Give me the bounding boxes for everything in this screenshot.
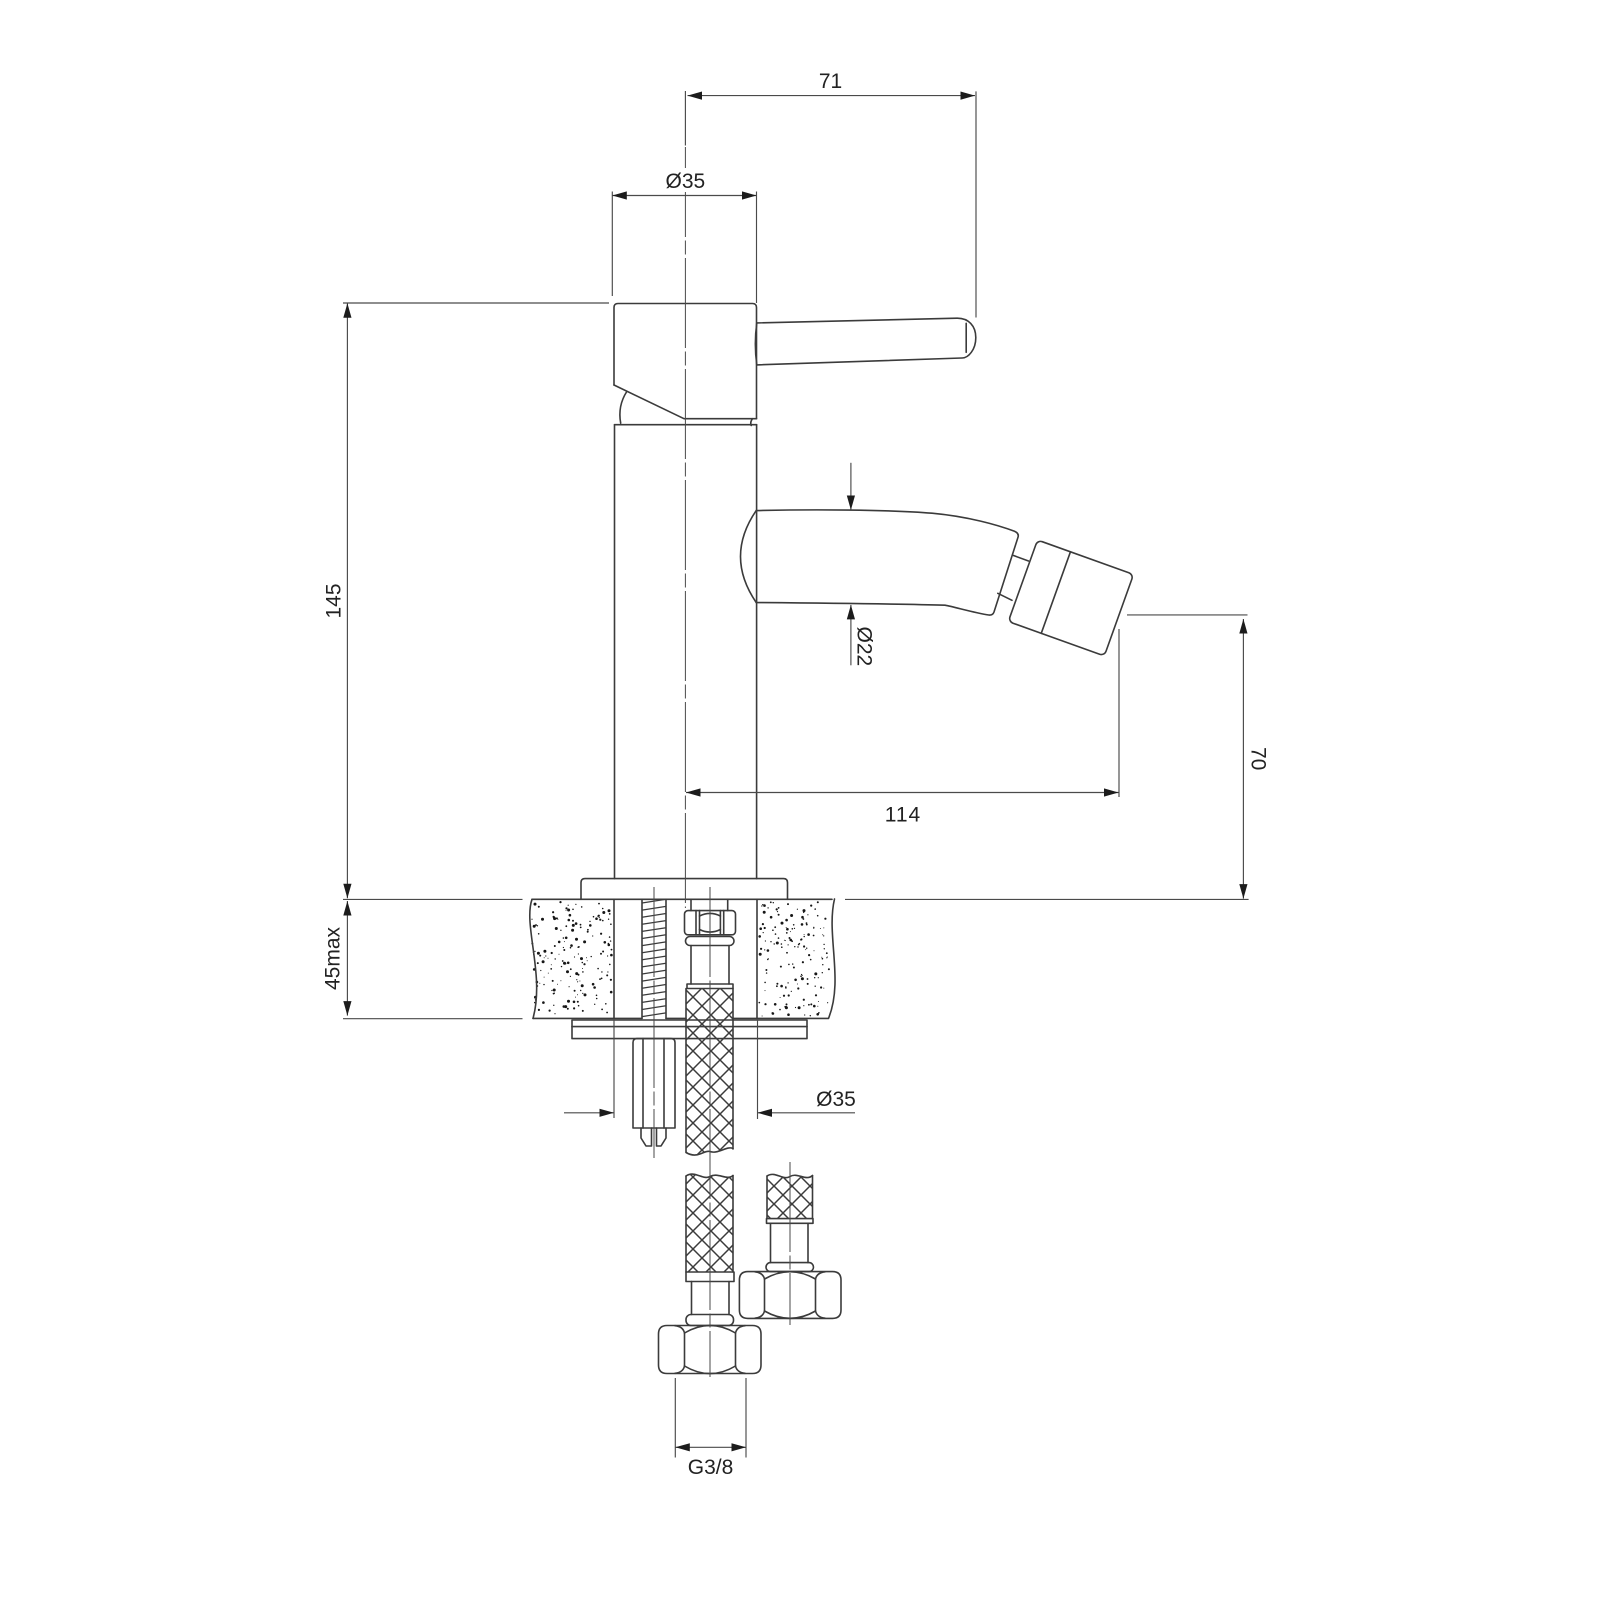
svg-text:G3/8: G3/8: [688, 1456, 734, 1479]
svg-text:45max: 45max: [322, 926, 345, 990]
svg-text:Ø35: Ø35: [666, 170, 706, 193]
svg-text:Ø22: Ø22: [853, 627, 876, 667]
svg-text:70: 70: [1247, 747, 1270, 770]
svg-text:71: 71: [819, 70, 842, 93]
svg-text:114: 114: [885, 804, 921, 827]
svg-text:145: 145: [323, 583, 346, 618]
svg-text:Ø35: Ø35: [816, 1088, 856, 1111]
